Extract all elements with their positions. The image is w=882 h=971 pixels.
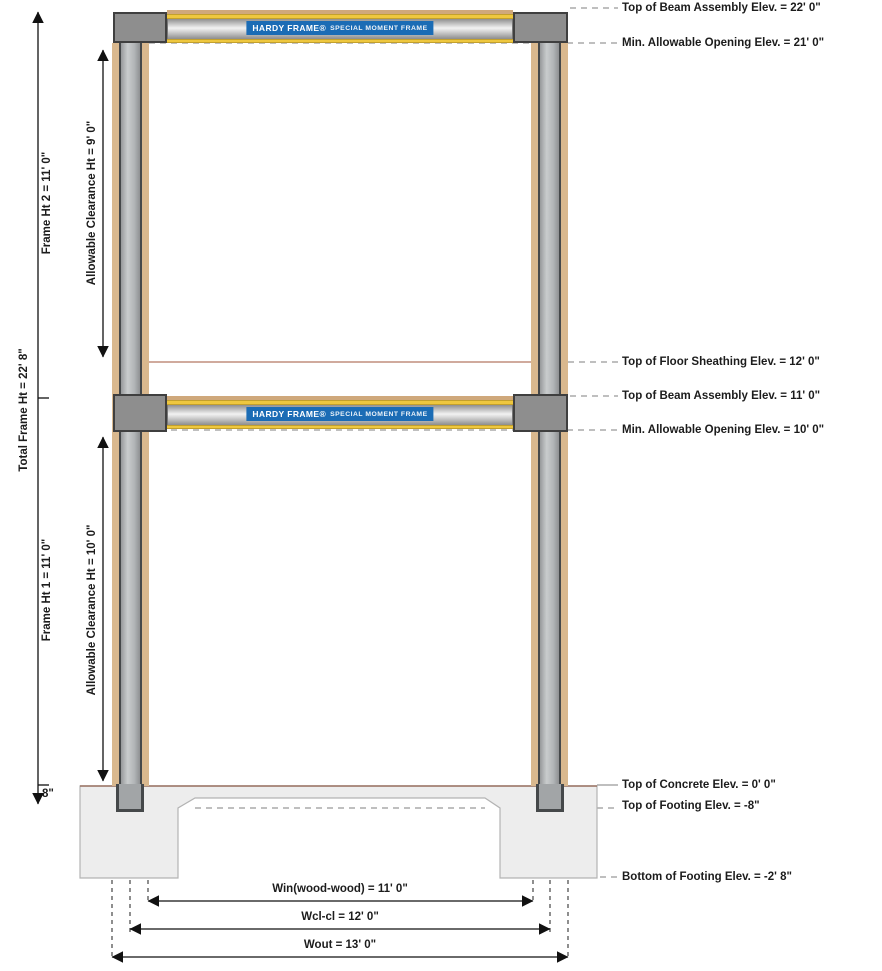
roof-left-connection-block: [113, 12, 167, 43]
frame-height-2-label: Frame Ht 2 = 11' 0": [41, 152, 53, 254]
callout-min-opening-2: Min. Allowable Opening Elev. = 21' 0": [622, 35, 824, 51]
floor-left-connection-block: [113, 394, 167, 432]
width-inner-label: Win(wood-wood) = 11' 0": [272, 883, 408, 895]
roof-beam-bottom-flange: [167, 39, 513, 43]
clearance-height-1-label: Allowable Clearance Ht = 10' 0": [86, 525, 98, 696]
callout-min-opening-1: Min. Allowable Opening Elev. = 10' 0": [622, 422, 824, 438]
callout-top-of-concrete: Top of Concrete Elev. = 0' 0": [622, 777, 776, 793]
clearance-height-2-label: Allowable Clearance Ht = 9' 0": [86, 121, 98, 285]
frame-elevation-diagram: HARDY FRAME® SPECIAL MOMENT FRAME HARDY …: [0, 0, 882, 971]
product-name: SPECIAL MOMENT FRAME: [330, 411, 427, 418]
roof-right-connection-block: [513, 12, 568, 43]
product-name: SPECIAL MOMENT FRAME: [330, 25, 427, 32]
total-frame-height-label: Total Frame Ht = 22' 8": [18, 348, 30, 471]
floor-beam-bottom-flange: [167, 425, 513, 429]
callout-floor-sheathing: Top of Floor Sheathing Elev. = 12' 0": [622, 354, 820, 370]
height-dimension-line: [38, 12, 49, 804]
embed-depth-label: 8": [42, 786, 54, 802]
width-centerline-label: Wcl-cl = 12' 0": [301, 911, 379, 923]
floor-right-connection-block: [513, 394, 568, 432]
frame-height-1-label: Frame Ht 1 = 11' 0": [41, 539, 53, 641]
brand-name: HARDY FRAME®: [252, 409, 326, 419]
width-outer-label: Wout = 13' 0": [304, 939, 376, 951]
brand-name: HARDY FRAME®: [252, 23, 326, 33]
roof-beam-brand-badge: HARDY FRAME® SPECIAL MOMENT FRAME: [246, 21, 433, 35]
callout-top-of-footing: Top of Footing Elev. = -8": [622, 798, 760, 814]
callout-bottom-of-footing: Bottom of Footing Elev. = -2' 8": [622, 869, 792, 885]
callout-top-of-beam-1: Top of Beam Assembly Elev. = 11' 0": [622, 388, 820, 404]
floor-beam-brand-badge: HARDY FRAME® SPECIAL MOMENT FRAME: [246, 407, 433, 421]
concrete-footing: [80, 786, 597, 878]
right-column-embedment: [536, 784, 564, 812]
left-column-embedment: [116, 784, 144, 812]
callout-top-of-beam-2: Top of Beam Assembly Elev. = 22' 0": [622, 0, 821, 16]
